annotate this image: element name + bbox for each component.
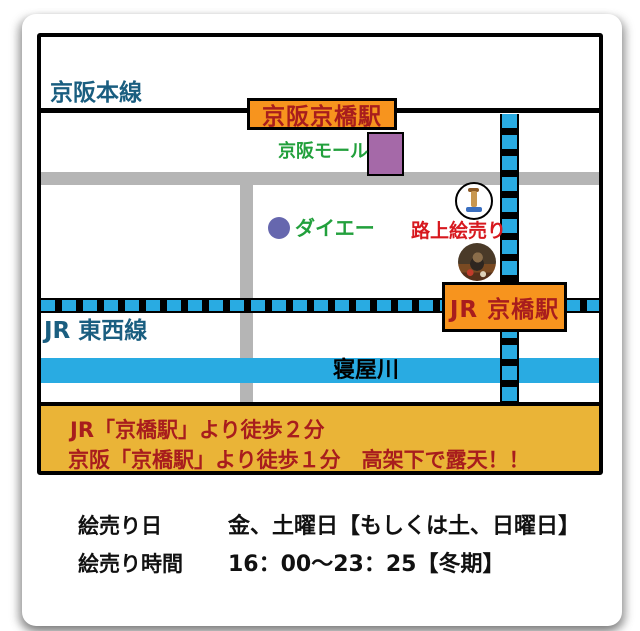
- keihan-kyobashi-station-label: 京阪京橋駅: [262, 97, 382, 131]
- jr-kyobashi-station-box: JR 京橋駅: [442, 282, 567, 332]
- map-canvas: 京阪本線 寝屋川 京阪モール 京阪京橋駅 ダイエー 路上絵売り: [37, 33, 603, 475]
- access-banner: JR「京橋駅」より徒歩２分 京阪「京橋駅」より徒歩１分 高架下で露天！！: [41, 402, 599, 471]
- loop-railway-line: [500, 114, 519, 402]
- keihan-kyobashi-station-box: 京阪京橋駅: [247, 98, 397, 130]
- keihan-main-line-label: 京阪本線: [50, 82, 142, 105]
- map-card: 京阪本線 寝屋川 京阪モール 京阪京橋駅 ダイエー 路上絵売り: [22, 14, 622, 626]
- keihan-mall-label: 京阪モール: [278, 143, 368, 161]
- daiei-label: ダイエー: [295, 218, 375, 238]
- info-label-days: 絵売り日: [78, 516, 228, 537]
- river-label: 寝屋川: [333, 360, 399, 382]
- banner-line2: 京阪「京橋駅」より徒歩１分 高架下で露天！！: [68, 450, 530, 471]
- info-value-hours: 16：00～23：25【冬期】: [228, 552, 504, 577]
- jr-kyobashi-station-label: JR 京橋駅: [450, 290, 559, 324]
- info-label-hours: 絵売り時間: [78, 554, 228, 575]
- info-row-hours: 絵売り時間16：00～23：25【冬期】: [78, 554, 504, 576]
- jr-tozai-line-label: JR 東西線: [44, 320, 147, 343]
- banner-line1: JR「京橋駅」より徒歩２分: [70, 420, 325, 441]
- keihan-mall-building: [367, 132, 404, 176]
- info-value-days: 金、土曜日【もしくは土、日曜日】: [228, 514, 580, 539]
- street-art-label: 路上絵売り: [411, 222, 506, 241]
- artist-figure-icon: [455, 182, 493, 220]
- info-row-days: 絵売り日金、土曜日【もしくは土、日曜日】: [78, 516, 580, 538]
- daiei-marker: [268, 217, 290, 239]
- street-photo: [458, 243, 496, 281]
